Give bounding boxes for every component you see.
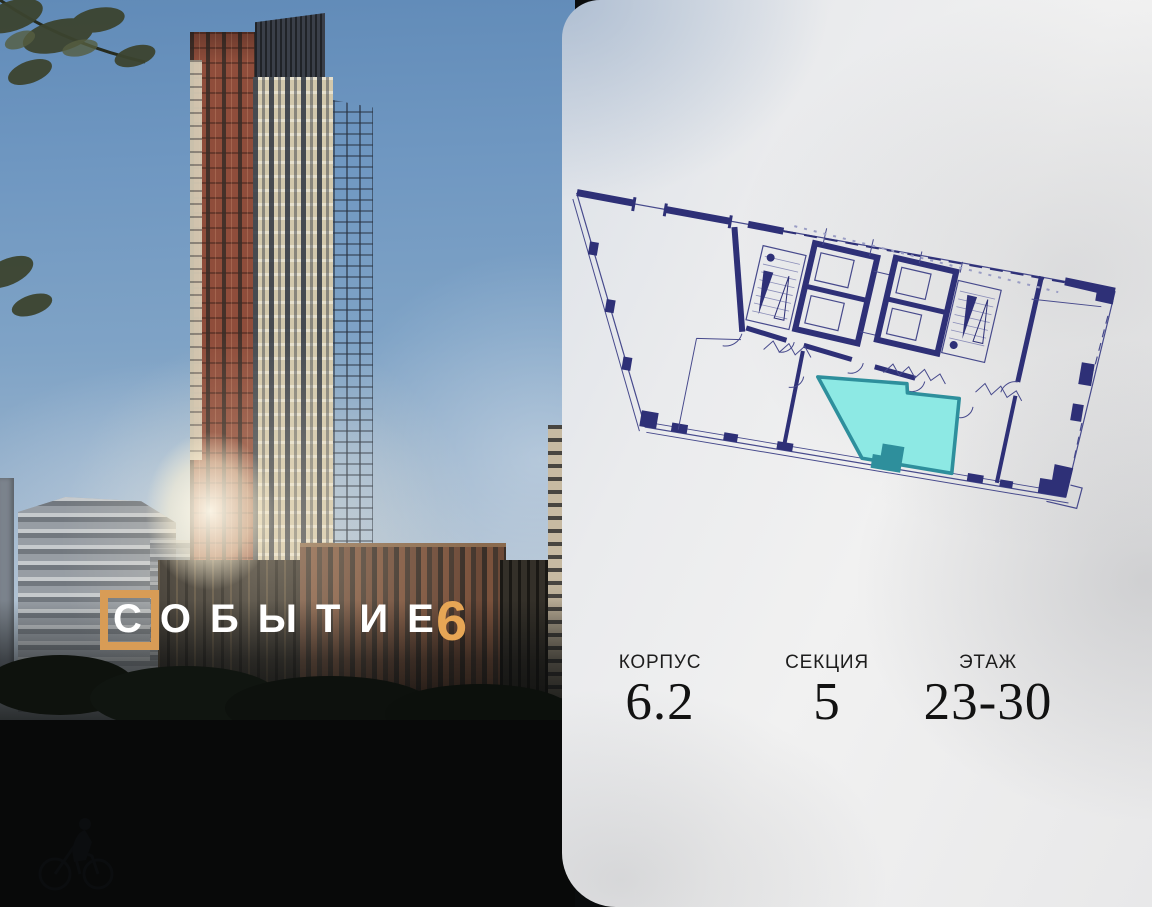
logo-number: 6 [436,588,467,653]
tower-cream-facade [253,77,333,602]
detail-etazh: ЭТАЖ 23-30 [906,652,1070,729]
sekciya-value: 5 [765,676,889,729]
etazh-value: 23-30 [906,676,1070,729]
sekciya-label: СЕКЦИЯ [765,652,889,674]
unit-details: КОРПУС 6.2 СЕКЦИЯ 5 ЭТАЖ 23-30 [562,652,1152,752]
unit-info-card: КОРПУС 6.2 СЕКЦИЯ 5 ЭТАЖ 23-30 [562,0,1152,907]
korpus-value: 6.2 [598,676,722,729]
floor-plan [534,186,1126,515]
etazh-label: ЭТАЖ [906,652,1070,674]
tower-dark-crown [255,13,325,79]
logo-letter-first: С [113,597,160,641]
detail-sekciya: СЕКЦИЯ 5 [765,652,889,729]
cyclist-silhouette [28,782,128,897]
korpus-label: КОРПУС [598,652,722,674]
screenshot-root: СОБЫТИЕ 6 [0,0,1152,907]
tower-cream-edge [190,60,202,460]
logo-letters-rest: ОБЫТИЕ [160,597,453,641]
building-photo: СОБЫТИЕ 6 [0,0,575,907]
floor-plan-svg [534,186,1126,515]
tower-glass-facade [333,100,373,602]
plan-outer-walls [539,188,1117,509]
logo-wordmark: СОБЫТИЕ [113,597,453,642]
selected-unit-highlight[interactable] [804,369,965,481]
tree-leaves [0,0,180,360]
detail-korpus: КОРПУС 6.2 [598,652,722,729]
